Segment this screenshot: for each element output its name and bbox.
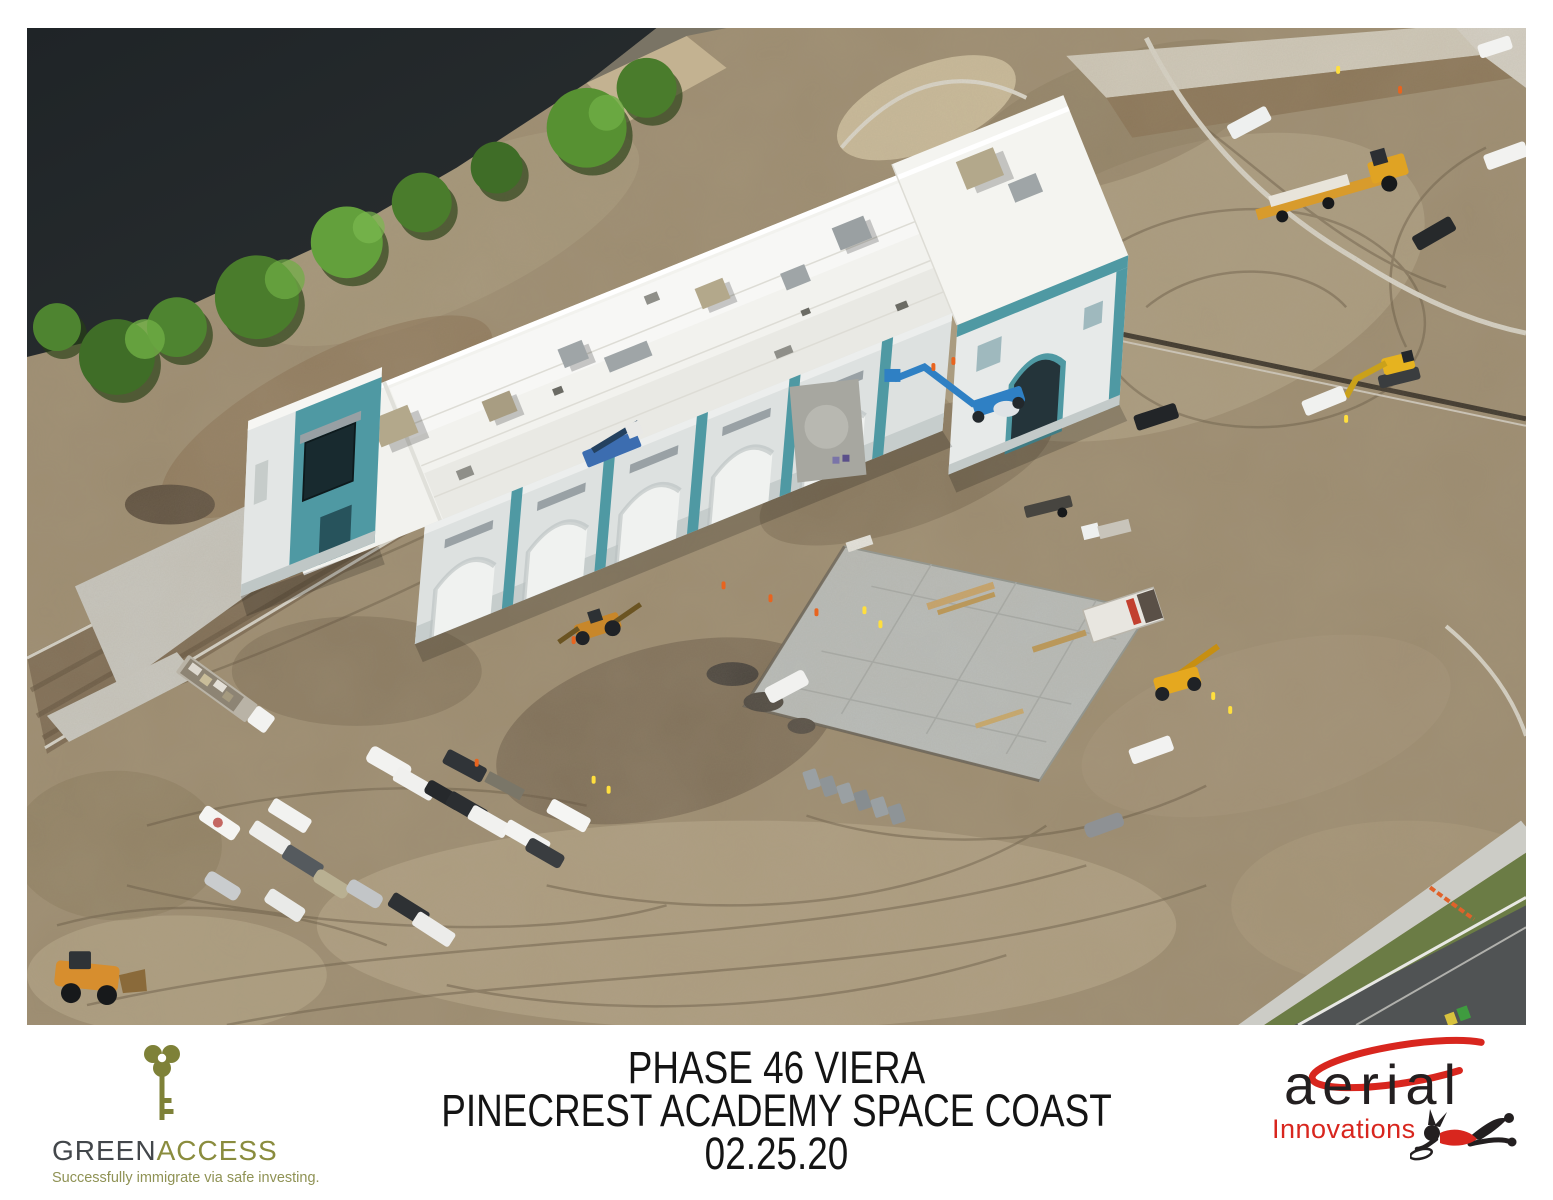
aerial-photo xyxy=(27,28,1526,1025)
caption-line-2: PINECREST ACADEMY SPACE COAST xyxy=(140,1089,1413,1132)
aerial-photo-canvas xyxy=(27,28,1526,1025)
innovations-wordmark: Innovations xyxy=(1272,1114,1416,1145)
aerial-innovations-logo: aerial Innovations xyxy=(1270,1040,1530,1180)
caption-line-3: 02.25.20 xyxy=(140,1132,1413,1175)
photo-page: GREENACCESS Successfully immigrate via s… xyxy=(0,0,1553,1200)
caption-line-1: PHASE 46 VIERA xyxy=(140,1046,1413,1089)
skydiver-icon xyxy=(1410,1102,1520,1164)
